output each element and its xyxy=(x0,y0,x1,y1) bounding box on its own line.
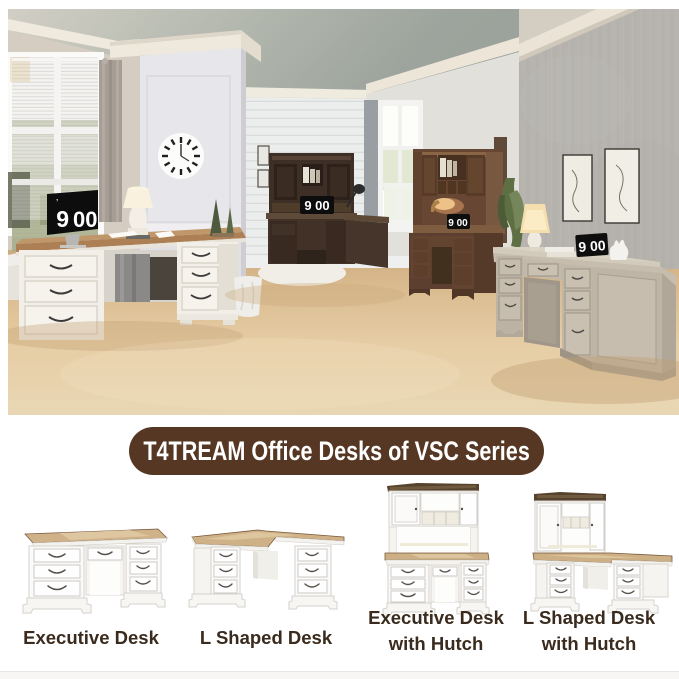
svg-text:00: 00 xyxy=(73,207,97,232)
svg-text:9 00: 9 00 xyxy=(304,198,329,213)
svg-text:9: 9 xyxy=(56,206,69,232)
svg-text:9 00: 9 00 xyxy=(578,237,607,255)
svg-text:9 00: 9 00 xyxy=(448,218,468,229)
